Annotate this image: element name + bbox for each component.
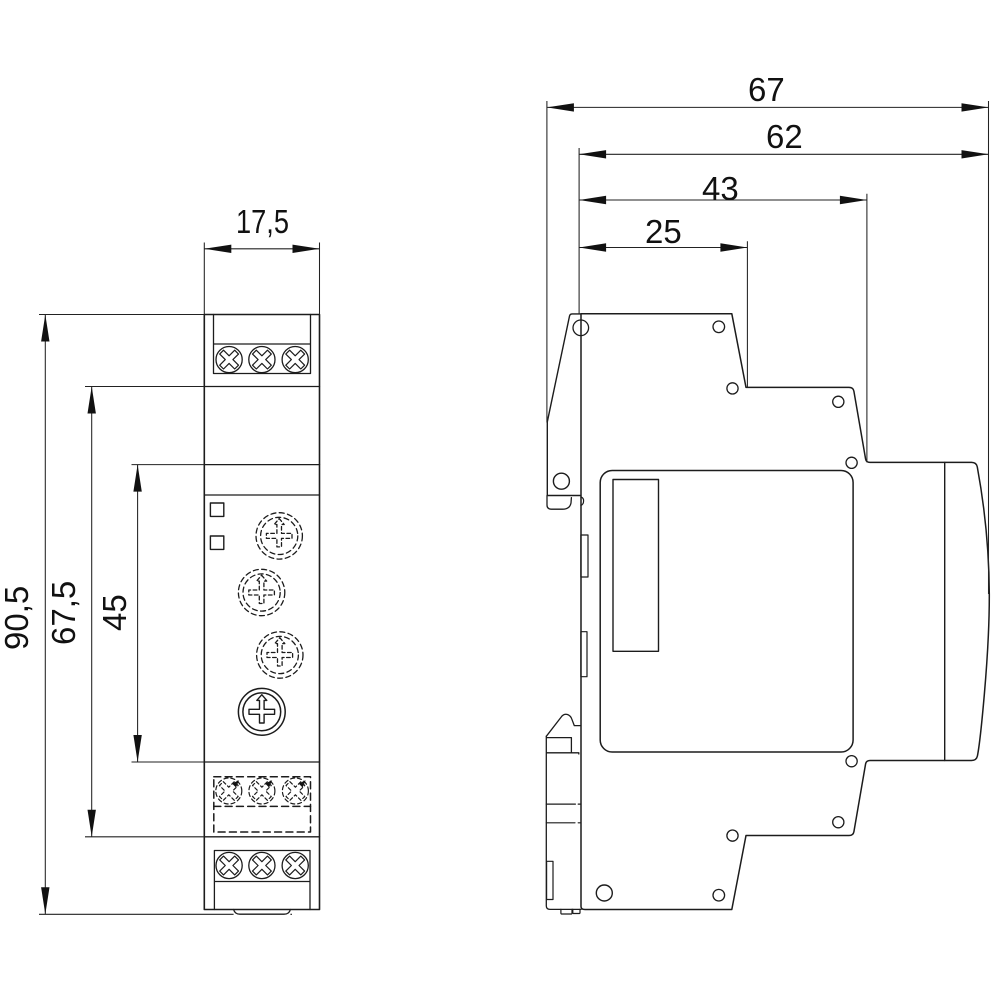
svg-text:90,5: 90,5 bbox=[0, 586, 35, 650]
svg-text:62: 62 bbox=[766, 118, 803, 155]
svg-text:67,5: 67,5 bbox=[45, 581, 82, 645]
svg-text:25: 25 bbox=[645, 213, 682, 250]
svg-text:43: 43 bbox=[702, 170, 739, 207]
svg-text:67: 67 bbox=[748, 71, 785, 108]
svg-text:17,5: 17,5 bbox=[236, 203, 289, 240]
svg-text:45: 45 bbox=[96, 594, 133, 631]
